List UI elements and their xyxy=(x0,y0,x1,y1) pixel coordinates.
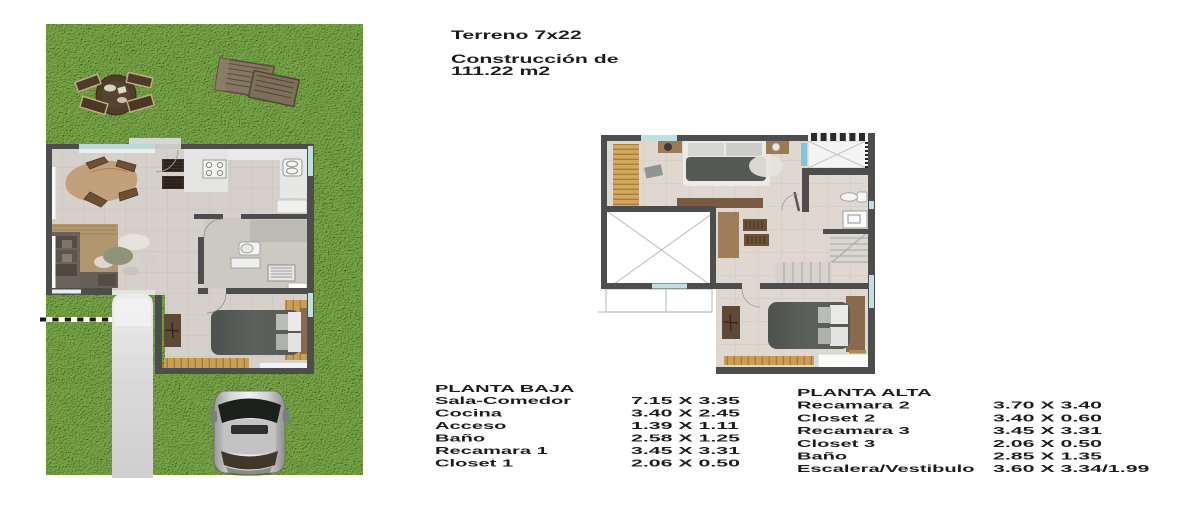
svg-text:Recamara 1: Recamara 1 xyxy=(435,446,548,457)
svg-text:PLANTA BAJA: PLANTA BAJA xyxy=(435,384,574,395)
svg-text:2.58 X 1.25: 2.58 X 1.25 xyxy=(631,432,740,444)
svg-text:Terreno 7x22: Terreno 7x22 xyxy=(451,28,582,42)
svg-text:7.15 X 3.35: 7.15 X 3.35 xyxy=(631,395,740,407)
svg-text:3.45 X 3.31: 3.45 X 3.31 xyxy=(631,445,740,457)
svg-text:Closet 3: Closet 3 xyxy=(797,439,875,450)
svg-text:Sala-Comedor: Sala-Comedor xyxy=(435,396,571,407)
svg-text:2.06 X 0.50: 2.06 X 0.50 xyxy=(631,457,740,469)
svg-text:3.70 X 3.40: 3.70 X 3.40 xyxy=(993,399,1102,411)
svg-text:Cocina: Cocina xyxy=(435,408,502,419)
svg-text:3.40 X 0.60: 3.40 X 0.60 xyxy=(993,412,1102,424)
svg-text:Closet 1: Closet 1 xyxy=(435,458,513,469)
svg-text:3.40 X 2.45: 3.40 X 2.45 xyxy=(631,407,740,419)
svg-text:Baño: Baño xyxy=(797,451,848,462)
svg-text:111.22 m2: 111.22 m2 xyxy=(451,64,550,78)
svg-text:1.39 X 1.11: 1.39 X 1.11 xyxy=(631,420,739,432)
svg-text:3.60 X 3.34/1.99: 3.60 X 3.34/1.99 xyxy=(993,463,1149,475)
svg-text:3.45 X 3.31: 3.45 X 3.31 xyxy=(993,425,1102,437)
svg-text:Recamara 2: Recamara 2 xyxy=(797,401,910,412)
svg-text:Acceso: Acceso xyxy=(435,421,507,432)
svg-text:Recamara 3: Recamara 3 xyxy=(797,426,910,437)
svg-text:PLANTA ALTA: PLANTA ALTA xyxy=(797,388,932,399)
svg-text:Escalera/Vestibulo: Escalera/Vestibulo xyxy=(797,464,975,475)
svg-text:2.06 X 0.50: 2.06 X 0.50 xyxy=(993,437,1102,449)
svg-text:2.85 X 1.35: 2.85 X 1.35 xyxy=(993,450,1102,462)
svg-text:Baño: Baño xyxy=(435,433,486,444)
svg-text:Closet 2: Closet 2 xyxy=(797,413,875,424)
